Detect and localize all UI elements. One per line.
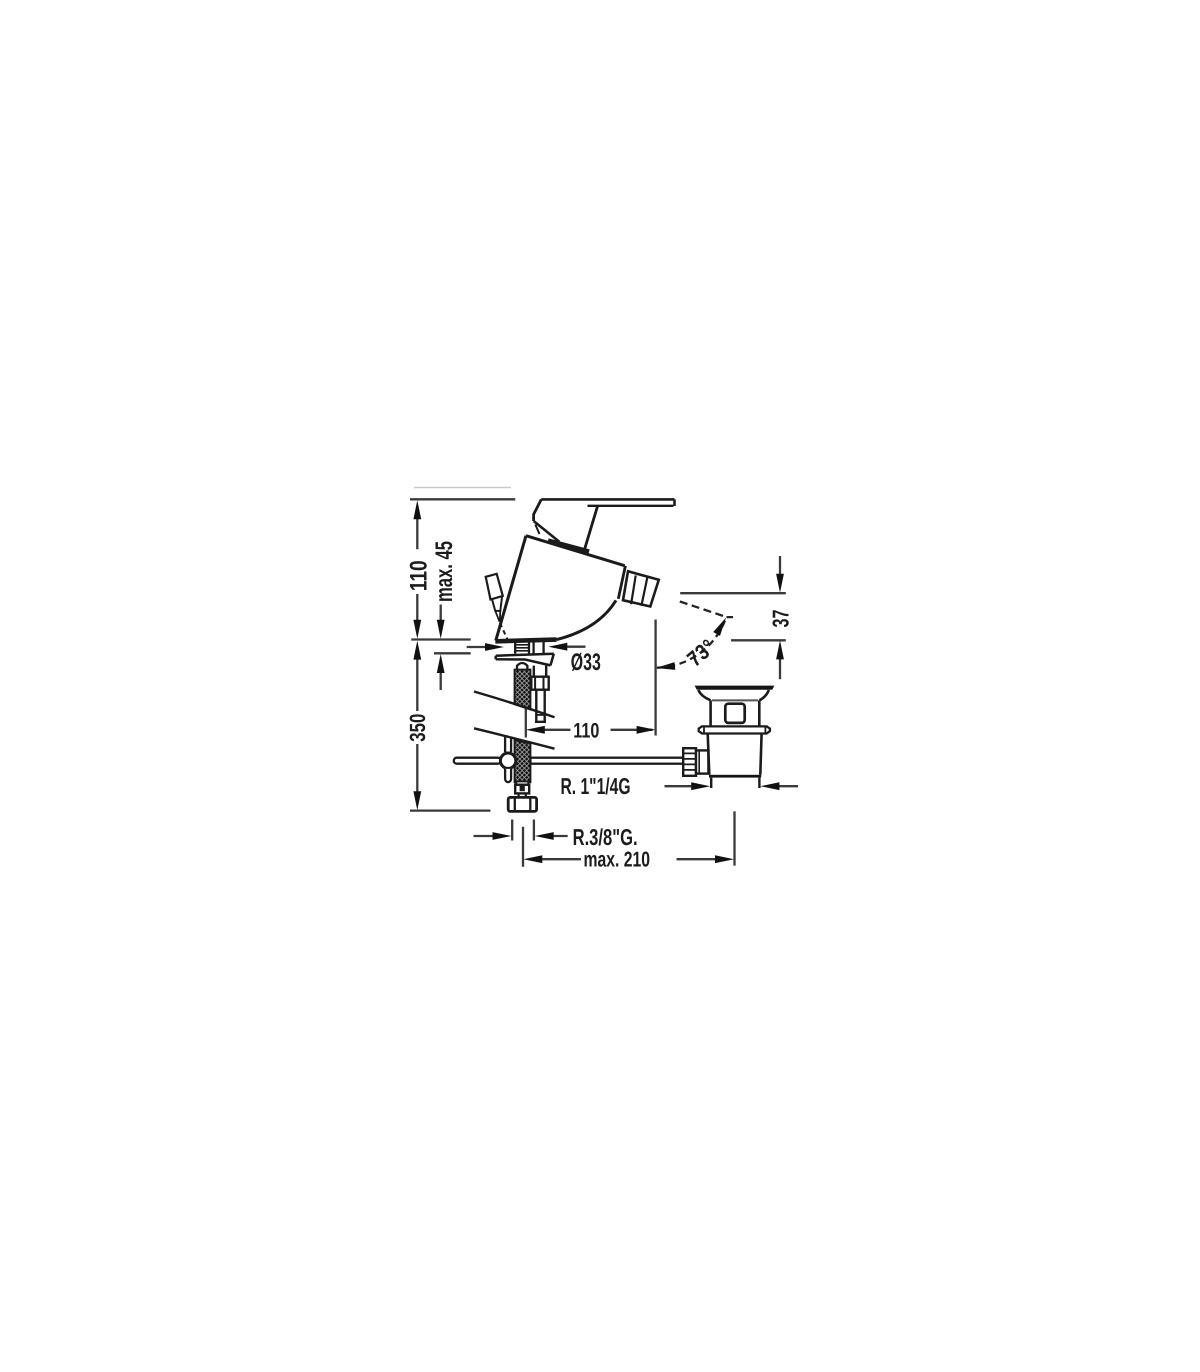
svg-text:R.3/8"G.: R.3/8"G. xyxy=(573,824,638,850)
svg-text:max. 210: max. 210 xyxy=(584,848,651,872)
svg-text:350: 350 xyxy=(405,714,430,742)
svg-text:max. 45: max. 45 xyxy=(431,541,458,602)
svg-text:37: 37 xyxy=(767,610,793,628)
svg-text:110: 110 xyxy=(406,560,433,591)
svg-text:R. 1"1/4G: R. 1"1/4G xyxy=(561,773,631,799)
svg-text:110: 110 xyxy=(573,720,599,743)
svg-text:Ø33: Ø33 xyxy=(571,649,601,676)
